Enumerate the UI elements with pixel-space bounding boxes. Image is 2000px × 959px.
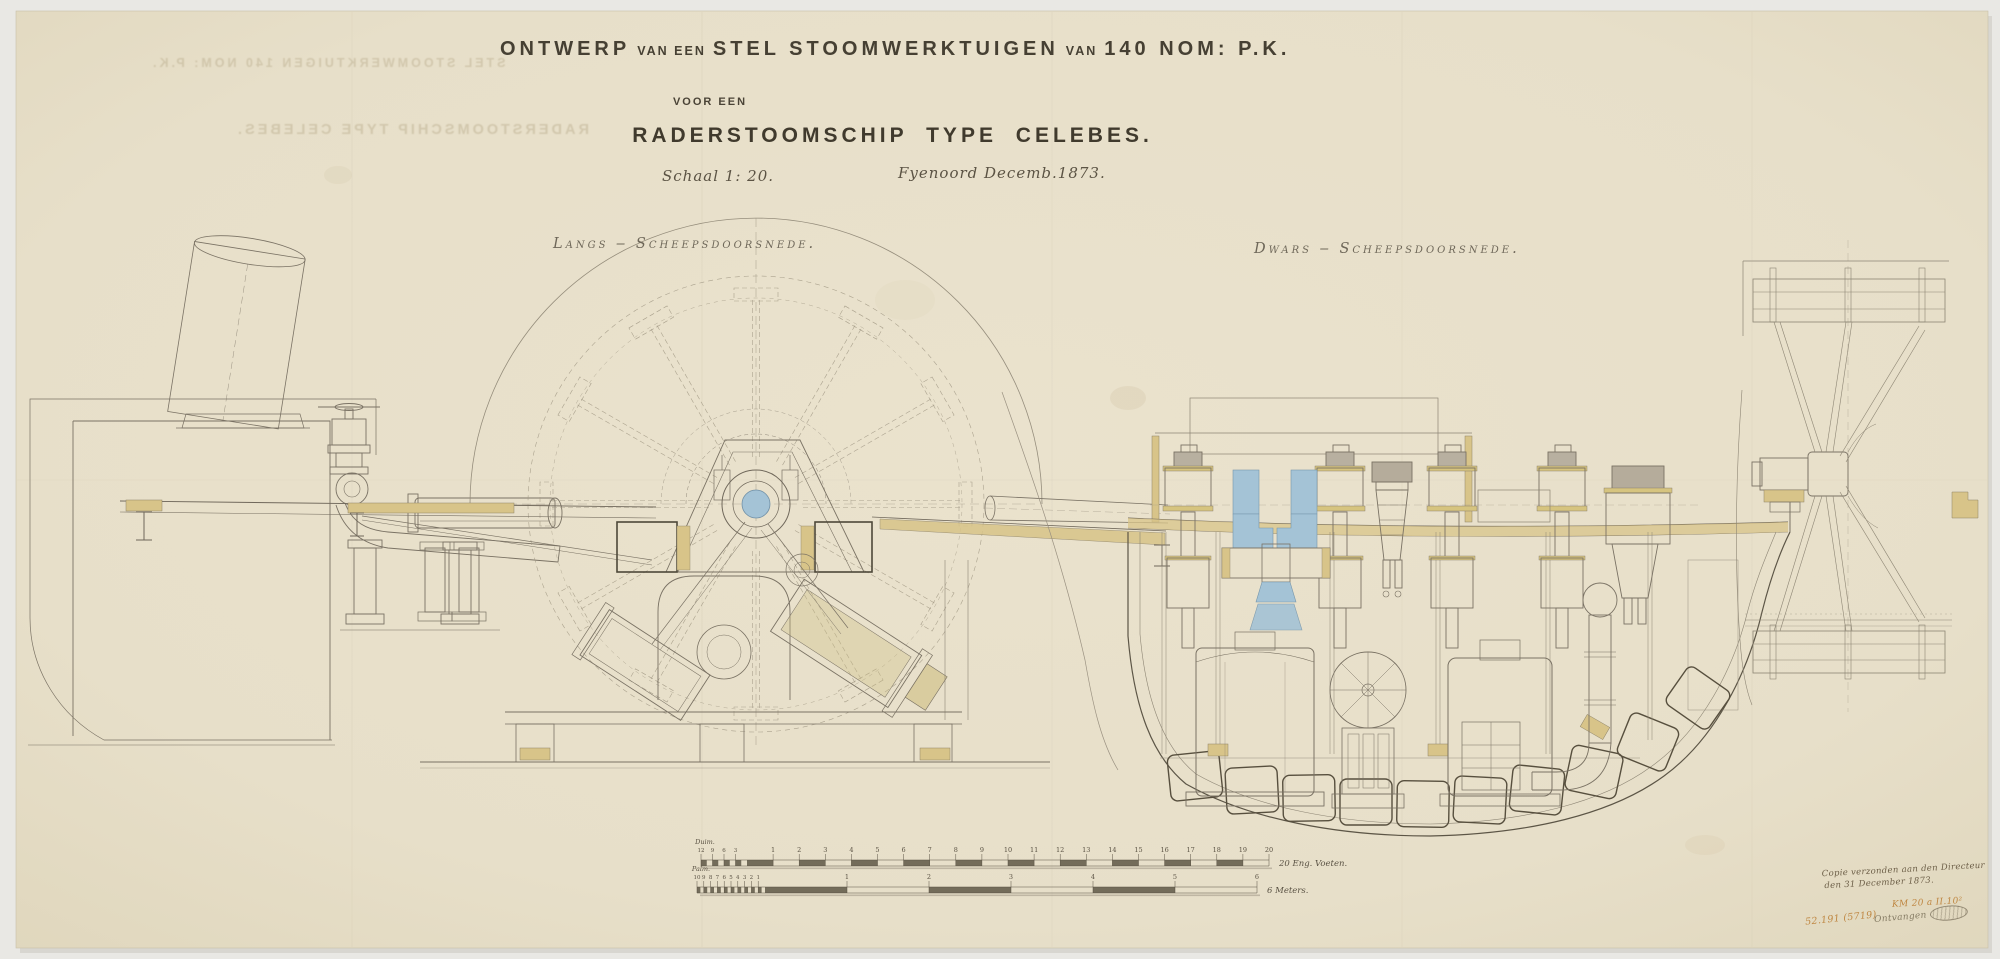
scale-text: 1 xyxy=(771,846,775,854)
scale-text: 6 xyxy=(722,875,726,881)
scale-text: 18 xyxy=(1213,846,1221,854)
scale-text: 3 xyxy=(743,875,747,881)
title-word-pk: 140 NOM: P.K. xyxy=(1104,38,1290,60)
scale-text: 4 xyxy=(736,875,740,881)
label-longitudinal-section: Langs ‒ Scheepsdoorsnede. xyxy=(553,236,816,252)
title-subtitle: VOOR EEN xyxy=(655,96,765,108)
scale-text: 10 xyxy=(694,875,701,881)
scale-text: 6 Meters. xyxy=(1267,886,1308,896)
scale-text: 9 xyxy=(980,846,984,854)
drawing-title: ONTWERPVAN EENSTEL STOOMWERKTUIGENVAN140… xyxy=(500,38,1090,61)
scale-text: 20 Eng. Voeten. xyxy=(1278,859,1347,869)
scale-text: 2 xyxy=(927,873,931,881)
ghost-text-title: STEL STOOMWERKTUIGEN 140 NOM: P.K. xyxy=(150,56,506,70)
scale-text: 6 xyxy=(722,848,726,854)
scale-text: 4 xyxy=(849,846,853,854)
scale-text: 9 xyxy=(711,848,715,854)
title-word-van: VAN xyxy=(1066,44,1097,58)
scale-text: 10 xyxy=(1004,846,1012,854)
scale-text: 5 xyxy=(875,846,879,854)
scale-text: 16 xyxy=(1160,846,1168,854)
scale-text: 6 xyxy=(902,846,906,854)
scale-text: 11 xyxy=(1030,846,1038,854)
scanned-drawing-sheet: Duim.12963123456789101112131415161718192… xyxy=(0,0,2000,959)
label-transverse-section: Dwars ‒ Scheepsdoorsnede. xyxy=(1254,241,1520,257)
title-word-van-een: VAN EEN xyxy=(637,44,706,58)
title-word-ontwerp: ONTWERP xyxy=(500,38,630,60)
scale-text: 2 xyxy=(797,846,801,854)
scale-text: 3 xyxy=(1009,873,1013,881)
scale-text: 1 xyxy=(756,875,760,881)
received-label: Ontvangen xyxy=(1874,911,1927,926)
scale-text: 20 xyxy=(1265,846,1273,854)
scale-text: 6 xyxy=(1255,873,1259,881)
scale-text: Palm. xyxy=(691,865,710,873)
scale-text: 8 xyxy=(954,846,958,854)
scale-text: 19 xyxy=(1239,846,1247,854)
scale-text: 14 xyxy=(1108,846,1116,854)
scale-text: 9 xyxy=(702,875,706,881)
scale-text: 8 xyxy=(709,875,713,881)
ghost-text-vessel: RADERSTOOMSCHIP TYPE CELEBES. xyxy=(235,122,589,138)
place-date: Fyenoord Decemb.1873. xyxy=(898,164,1106,182)
scale-text: 15 xyxy=(1134,846,1142,854)
vessel-title: RADERSTOOMSCHIP TYPE CELEBES. xyxy=(630,124,1155,148)
scale-text: 7 xyxy=(716,875,720,881)
scale-text: 7 xyxy=(928,846,932,854)
scale-text: 3 xyxy=(823,846,827,854)
scale-text: 3 xyxy=(734,848,738,854)
scale-text: Duim. xyxy=(694,838,715,846)
scale-text: 2 xyxy=(750,875,754,881)
scale-note: Schaal 1: 20. xyxy=(662,167,774,185)
scale-text: 12 xyxy=(1056,846,1064,854)
scale-text: 1 xyxy=(845,873,849,881)
scale-text: 17 xyxy=(1187,846,1195,854)
scale-text: 4 xyxy=(1091,873,1095,881)
scale-text: 12 xyxy=(698,848,705,854)
scale-text: 5 xyxy=(729,875,733,881)
title-word-stoomwerktuigen: STEL STOOMWERKTUIGEN xyxy=(713,38,1059,60)
scale-text: 5 xyxy=(1173,873,1177,881)
scale-text: 13 xyxy=(1082,846,1090,854)
